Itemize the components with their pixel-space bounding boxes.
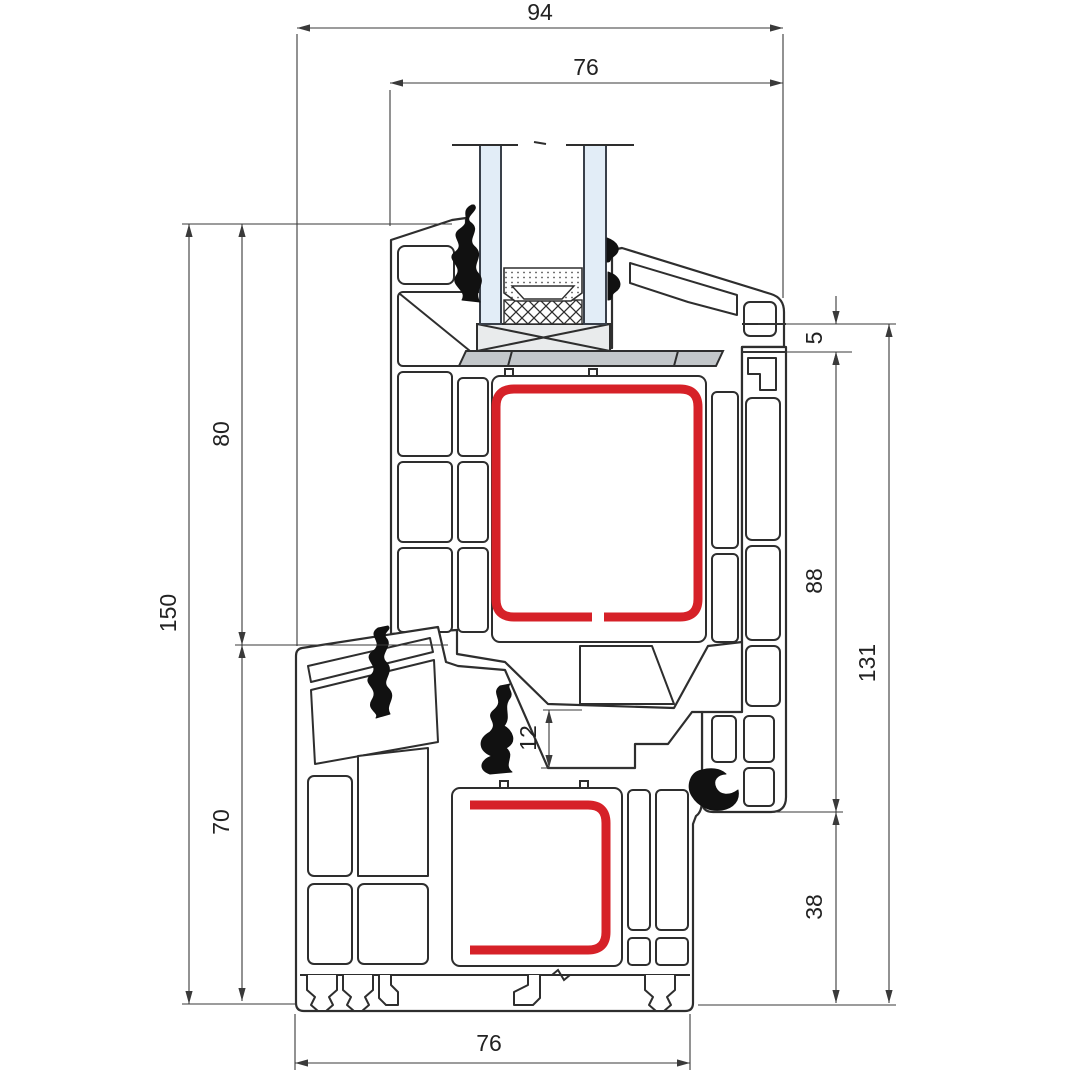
sash-chamber (744, 302, 776, 336)
dimension-label: 94 (527, 0, 553, 25)
frame-overlap-chamber (712, 716, 736, 762)
sash-chamber (458, 378, 488, 456)
sash-chamber (458, 548, 488, 632)
dimension-arrow (677, 1059, 690, 1066)
spacer-keystone (512, 286, 574, 299)
dimension-label: 76 (476, 1030, 502, 1056)
sash-chamber (458, 462, 488, 542)
dimension-rebate-height: 88 (801, 352, 840, 812)
dimension-arrow (770, 79, 783, 86)
frame-overlap-chamber (744, 716, 774, 762)
frame-chamber (656, 790, 688, 930)
sash-chamber (712, 554, 738, 642)
dimension-arrow (238, 224, 245, 237)
dimension-frame-height: 70 (208, 645, 246, 1001)
dimension-overall-face-width: 94 (297, 0, 783, 32)
dimension-lower-height: 38 (801, 812, 840, 1003)
glazing-strip (459, 351, 723, 366)
dimension-arrow (832, 799, 839, 812)
dimension-label: 12 (515, 725, 541, 751)
dimension-overlap-offset: 5 (801, 296, 840, 365)
dimension-frame-total-height: 131 (854, 324, 893, 1003)
edge-sealant-crosshatch (504, 300, 582, 324)
frame-chamber (308, 884, 352, 964)
sash-chamber (398, 462, 452, 542)
dimension-label: 76 (573, 54, 599, 80)
dimension-label: 80 (208, 421, 234, 447)
dimension-arrow (295, 1059, 308, 1066)
dimension-sash-height: 80 (208, 224, 246, 645)
dimension-label: 88 (801, 568, 827, 594)
frame-chamber (628, 790, 650, 930)
dimension-label: 38 (801, 894, 827, 920)
sash-chamber (398, 372, 452, 456)
technical-drawing-canvas: 94761508070588381311276 (0, 0, 1080, 1080)
frame-overlap-chamber (746, 646, 780, 706)
dimension-arrow (832, 990, 839, 1003)
dimension-label: 70 (208, 809, 234, 835)
dimension-arrow (832, 311, 839, 324)
dimension-frame-bottom-width: 76 (295, 1030, 690, 1067)
dimension-arrow (832, 352, 839, 365)
dimension-label: 131 (854, 644, 880, 682)
dimension-sash-depth: 76 (390, 54, 783, 87)
frame-chamber (358, 748, 428, 876)
sash-chamber (398, 246, 454, 284)
frame-overlap-chamber (746, 546, 780, 640)
sash-chamber (712, 392, 738, 548)
dimension-arrow (297, 24, 310, 31)
dimension-label: 5 (801, 332, 827, 345)
dimension-arrow (832, 812, 839, 825)
frame-overlap-chamber (744, 768, 774, 806)
frame-chamber (308, 776, 352, 876)
dimension-arrow (238, 632, 245, 645)
screw-channel-foot (645, 975, 675, 1011)
dimension-arrow (238, 645, 245, 658)
dimension-arrow (885, 324, 892, 337)
dimension-arrow (545, 710, 552, 723)
frame-chamber (656, 938, 688, 965)
dimension-arrow (885, 990, 892, 1003)
frame-chamber (358, 884, 428, 964)
screw-channel-foot (307, 975, 337, 1011)
glass-pane-inner (584, 145, 606, 324)
dimension-arrow (185, 224, 192, 237)
sash-chamber (398, 548, 452, 632)
window-profile-section-drawing: 94761508070588381311276 (0, 0, 1080, 1080)
sash-main-chamber (492, 376, 706, 642)
dimension-total-height: 150 (155, 224, 193, 1004)
dimension-arrow (770, 24, 783, 31)
frame-overlap-chamber (746, 398, 780, 540)
dimension-arrow (390, 79, 403, 86)
screw-channel-foot (343, 975, 373, 1011)
dimension-arrow (185, 991, 192, 1004)
dimension-arrow (238, 988, 245, 1001)
glass-pane-outer (480, 145, 501, 324)
frame-chamber (628, 938, 650, 965)
frame-steel-chamber (452, 788, 622, 966)
dimension-label: 150 (155, 594, 181, 632)
